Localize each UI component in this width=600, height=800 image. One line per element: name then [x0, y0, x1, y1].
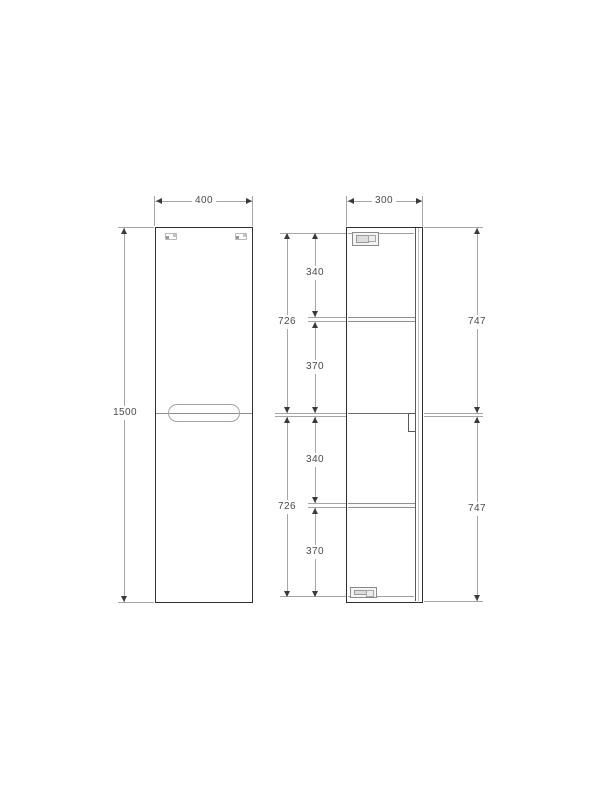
extension-line: [118, 602, 154, 603]
front-height-label: 1500: [110, 406, 140, 420]
upper-interior-label: 726: [275, 315, 299, 329]
dim-arrow-icon: [474, 417, 480, 423]
dim-arrow-icon: [312, 407, 318, 413]
dim-arrow-icon: [284, 417, 290, 423]
cabinet-technical-drawing: 400 300 1500: [0, 0, 600, 800]
dim-arrow-icon: [284, 407, 290, 413]
dim-arrow-icon: [474, 228, 480, 234]
hinge-bottom-icon: [350, 587, 377, 598]
upper-370-label: 370: [303, 360, 327, 374]
dim-arrow-icon: [284, 591, 290, 597]
upper-340-label: 340: [303, 266, 327, 280]
dim-arrow-icon: [312, 591, 318, 597]
hinge-plate-left-icon: [165, 233, 177, 240]
extension-line: [275, 413, 346, 414]
dim-arrow-icon: [156, 198, 162, 204]
dim-arrow-icon: [348, 198, 354, 204]
dim-arrow-icon: [474, 595, 480, 601]
extension-line: [424, 601, 483, 602]
dim-arrow-icon: [312, 497, 318, 503]
dim-arrow-icon: [284, 233, 290, 239]
shelf-lower: [348, 503, 415, 508]
middle-divider-line: [348, 413, 415, 414]
handle-profile: [408, 413, 416, 432]
lower-overall-label: 747: [465, 502, 489, 516]
lower-interior-label: 726: [275, 500, 299, 514]
extension-line: [308, 317, 346, 318]
front-width-label: 400: [192, 195, 216, 207]
dim-arrow-icon: [246, 198, 252, 204]
dim-arrow-icon: [312, 417, 318, 423]
dim-arrow-icon: [121, 228, 127, 234]
upper-overall-label: 747: [465, 315, 489, 329]
dim-arrow-icon: [312, 311, 318, 317]
shelf-upper: [348, 317, 415, 322]
lower-370-label: 370: [303, 545, 327, 559]
extension-line: [308, 503, 346, 504]
handle-recess: [168, 404, 240, 422]
extension-line: [424, 413, 483, 414]
door-panel-line-inner: [418, 228, 419, 601]
dim-arrow-icon: [312, 322, 318, 328]
hinge-plate-right-icon: [235, 233, 247, 240]
dim-arrow-icon: [474, 407, 480, 413]
dim-arrow-icon: [312, 508, 318, 514]
lower-340-label: 340: [303, 453, 327, 467]
extension-line: [422, 196, 423, 226]
hinge-top-icon: [352, 232, 379, 246]
dim-arrow-icon: [312, 233, 318, 239]
dim-arrow-icon: [121, 596, 127, 602]
side-depth-label: 300: [372, 195, 396, 207]
dim-arrow-icon: [416, 198, 422, 204]
